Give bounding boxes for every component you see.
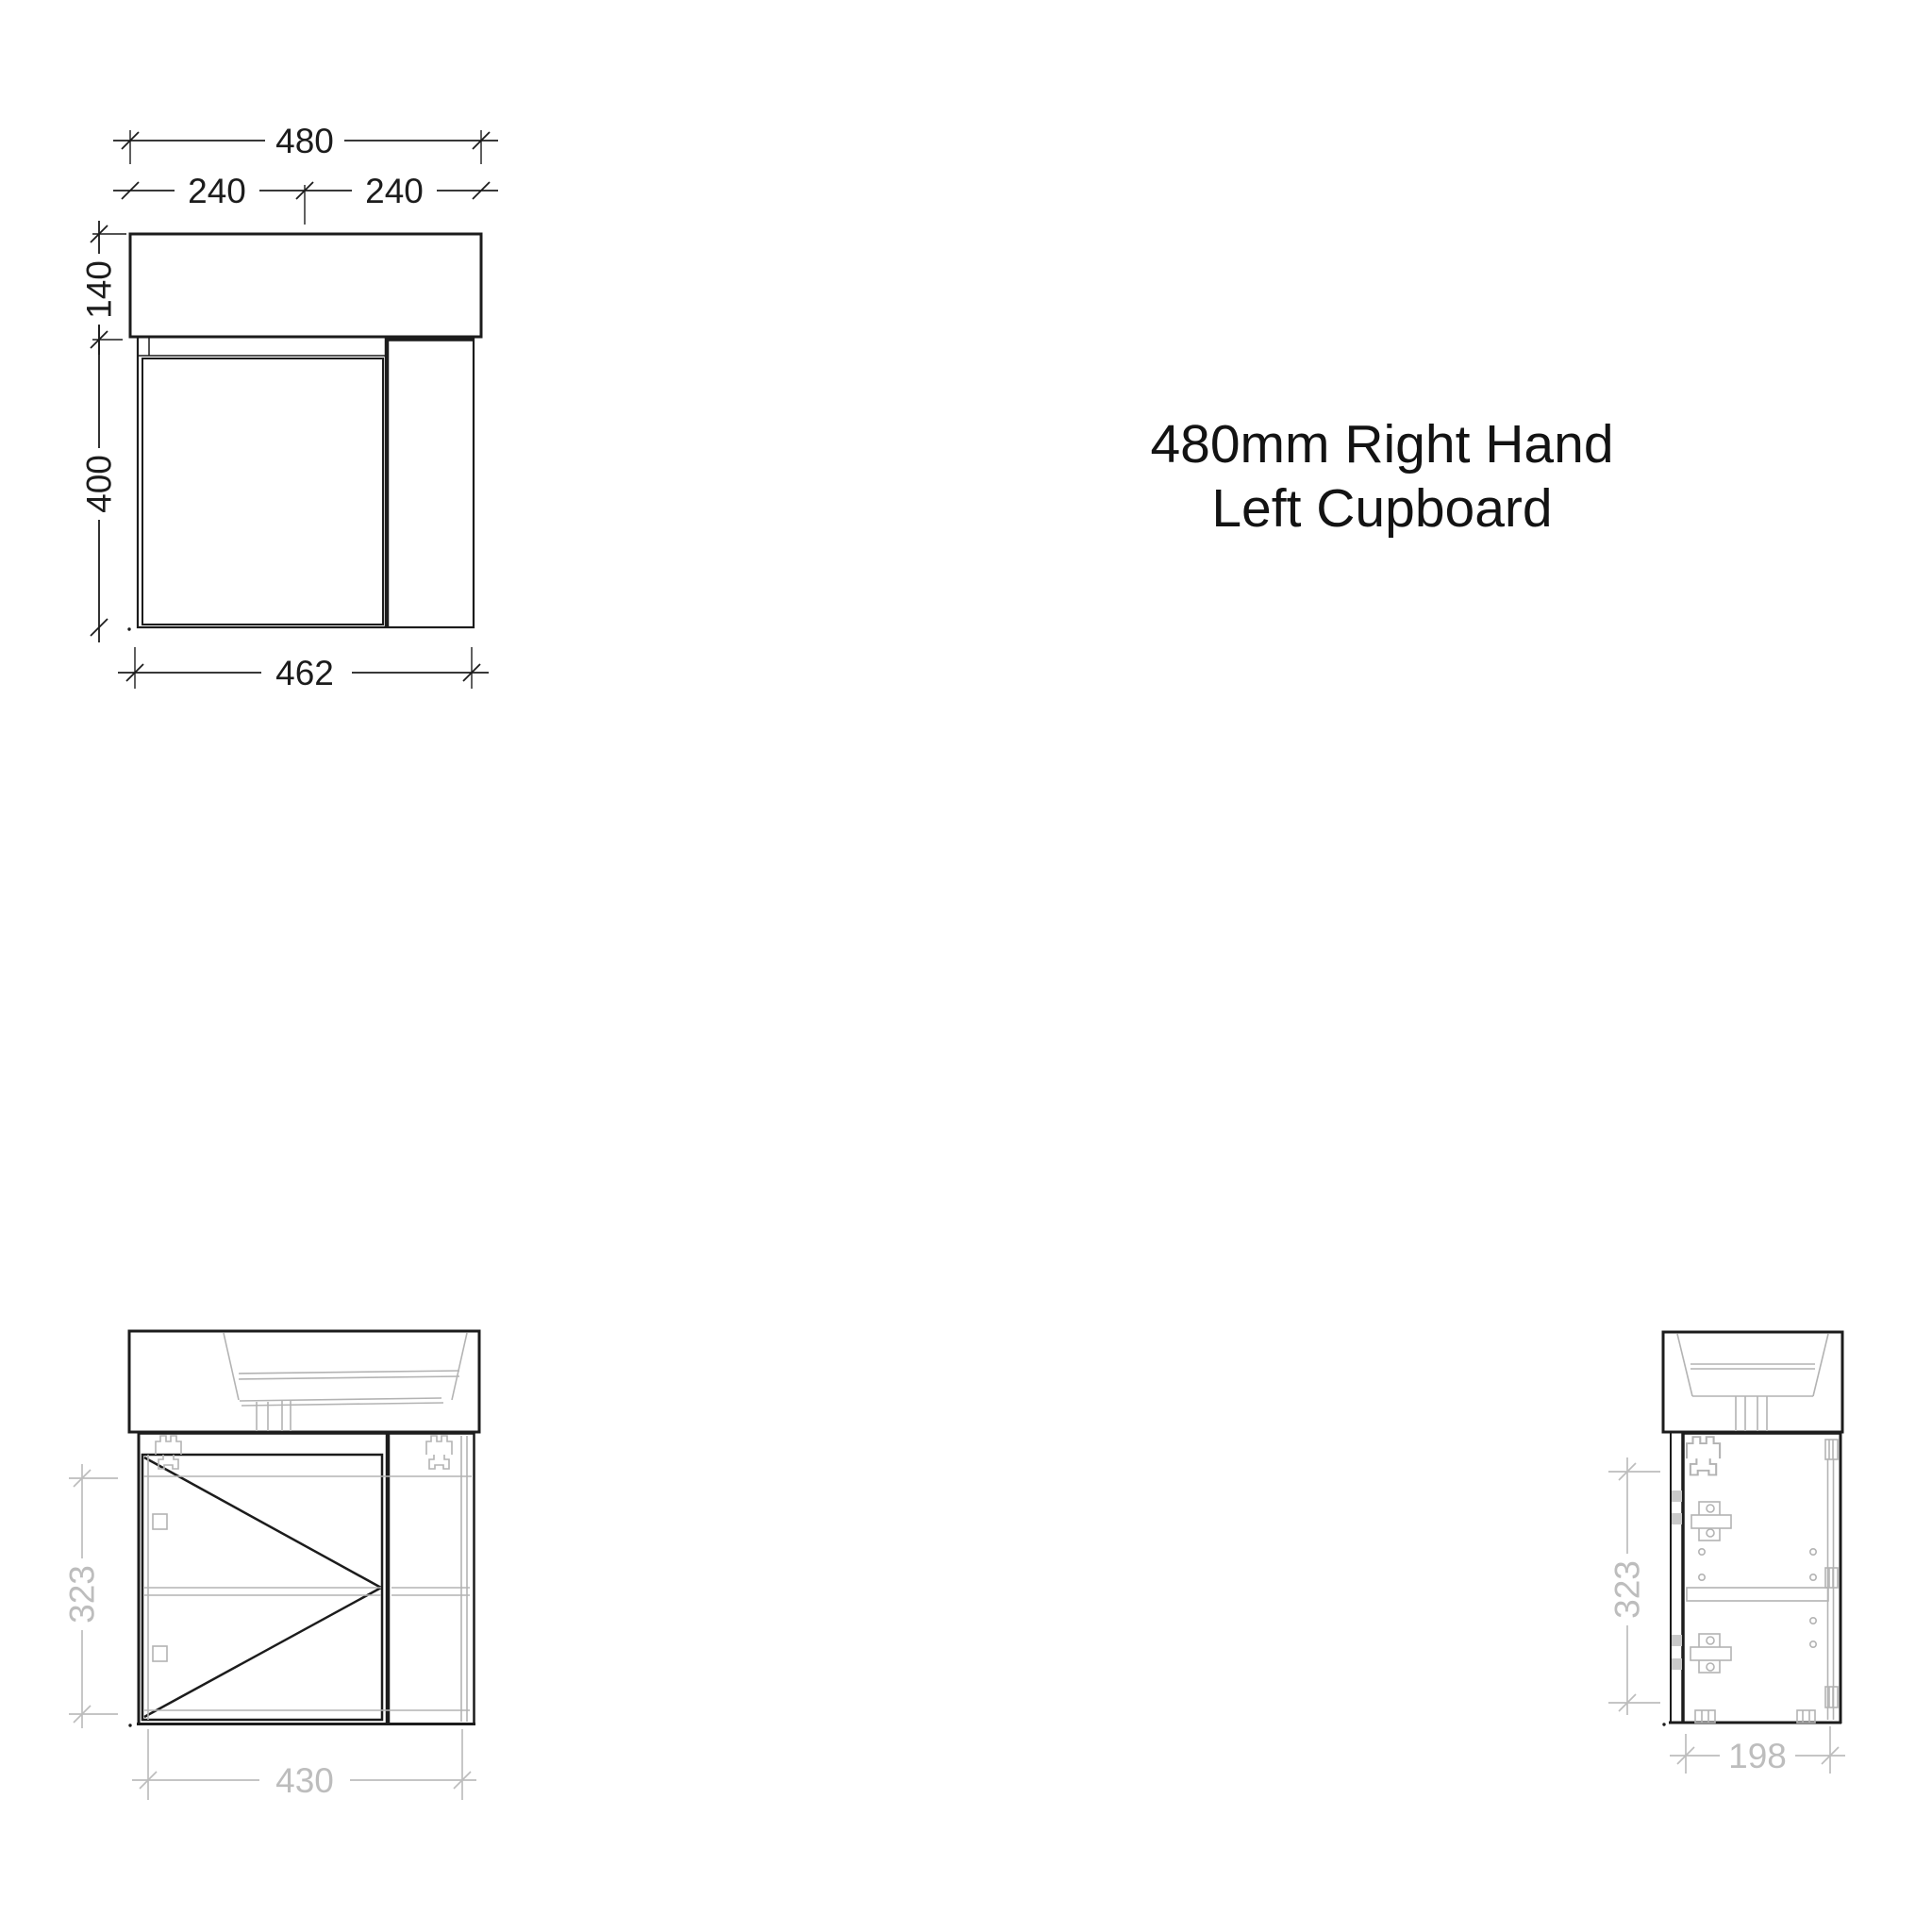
drawing-sheet: 480 240 240 [0, 0, 1932, 1932]
dim-side-depth: 198 [1670, 1726, 1845, 1775]
dim-split-widths: 240 240 [113, 172, 498, 225]
shelf-pin-hole [1810, 1549, 1816, 1555]
dim-label-side-depth: 198 [1728, 1737, 1787, 1775]
hinge-cross-upper [1691, 1502, 1731, 1541]
shelf-pin-hole [1810, 1574, 1816, 1580]
product-title: 480mm Right Hand Left Cupboard [1099, 412, 1665, 541]
dim-label-component-height: 323 [63, 1565, 102, 1624]
wall-bracket-side [1687, 1437, 1720, 1474]
shelf-pin-hole [1810, 1641, 1816, 1647]
dim-label-component-width: 430 [275, 1761, 334, 1800]
countertop [130, 234, 481, 337]
side-component-drawing: 323 198 [1585, 1302, 1906, 1830]
dim-label-right-width: 240 [365, 172, 424, 210]
dim-total-width: 480 [113, 122, 498, 164]
front-elevation-drawing: 480 240 240 [57, 94, 528, 717]
dim-side-height: 323 [1608, 1457, 1661, 1715]
wall-bracket-left [156, 1436, 181, 1469]
dim-label-side-height: 323 [1608, 1560, 1647, 1619]
hinge-plate-upper [153, 1514, 167, 1529]
cabinet-inner-details [143, 1436, 472, 1722]
connector-blocks [1695, 1440, 1838, 1723]
dim-cabinet-height: 400 [80, 325, 124, 642]
dim-component-width: 430 [132, 1729, 476, 1800]
hinge-plate-lower [153, 1646, 167, 1661]
door-panel [142, 358, 383, 625]
basin-bowl [224, 1333, 467, 1431]
dim-top-height: 140 [80, 221, 127, 355]
product-title-line2: Left Cupboard [1099, 476, 1665, 541]
dim-label-left-width: 240 [188, 172, 246, 210]
dim-component-height: 323 [63, 1464, 119, 1728]
washbasin [129, 1331, 479, 1432]
dim-label-cabinet-height: 400 [80, 455, 119, 513]
washbasin-side [1663, 1332, 1842, 1432]
shelf-pin-hole [1810, 1618, 1816, 1624]
hinge-cross-lower [1690, 1634, 1731, 1673]
wall-bracket-right [426, 1436, 452, 1469]
shelf-pin-hole [1699, 1574, 1705, 1580]
cabinet-front [127, 337, 474, 631]
door-swing-line-lower [144, 1588, 381, 1717]
product-title-line1: 480mm Right Hand [1099, 412, 1665, 476]
front-component-drawing: 323 430 [38, 1302, 509, 1830]
shelf-pin-hole [1699, 1549, 1705, 1555]
dim-label-bottom-width: 462 [275, 654, 334, 692]
dim-bottom-width: 462 [118, 647, 489, 692]
dim-label-total-width: 480 [275, 122, 334, 160]
cabinet-side-details [1672, 1437, 1838, 1723]
basin-bowl-side [1677, 1334, 1828, 1431]
dim-label-top-height: 140 [80, 260, 119, 319]
shelf-side [1687, 1588, 1828, 1601]
